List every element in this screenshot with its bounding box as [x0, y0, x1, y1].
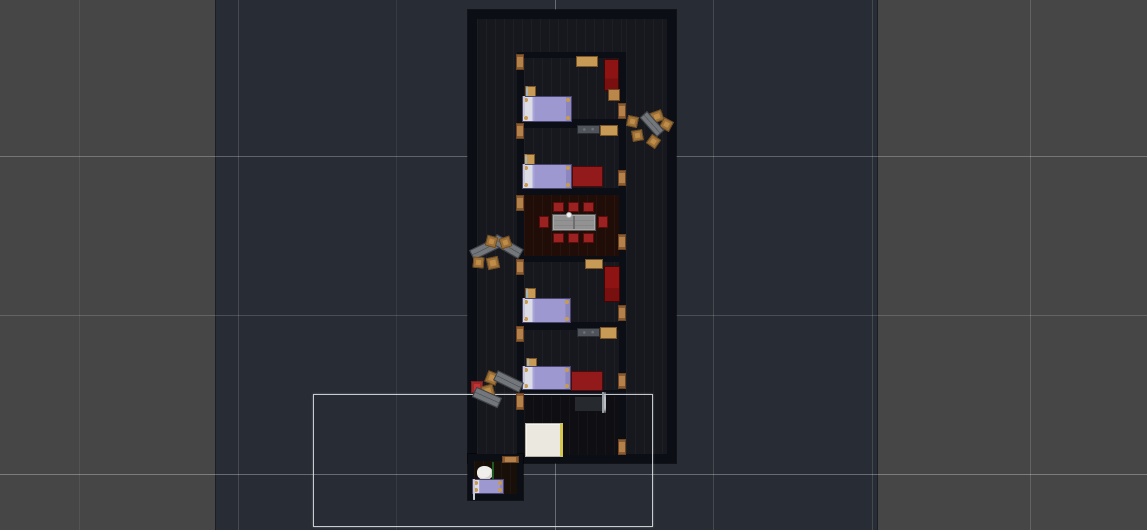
couch-red[interactable] — [571, 371, 603, 391]
grid-line-vertical — [238, 0, 239, 530]
wardrobe-red[interactable] — [604, 266, 620, 302]
chair-red[interactable] — [539, 216, 549, 228]
map-edge-left — [0, 0, 215, 530]
bed[interactable] — [522, 96, 572, 122]
door-v[interactable] — [516, 123, 524, 139]
map-edge-line — [877, 0, 878, 530]
map-edge-line — [215, 0, 216, 530]
shelf-tan[interactable] — [600, 125, 618, 136]
cup[interactable] — [566, 212, 572, 218]
shelf-tan[interactable] — [585, 259, 603, 269]
chair-red[interactable] — [553, 202, 564, 212]
shower[interactable] — [525, 423, 563, 457]
grid-line-vertical — [713, 0, 714, 530]
shelf-tan[interactable] — [576, 56, 598, 67]
stool[interactable] — [631, 129, 644, 142]
door-h[interactable] — [502, 456, 519, 463]
bed[interactable] — [472, 479, 504, 494]
counter[interactable] — [574, 396, 603, 412]
bed[interactable] — [522, 164, 572, 189]
bucket[interactable] — [486, 289, 505, 312]
chair-red[interactable] — [583, 233, 594, 243]
door-v[interactable] — [516, 195, 524, 211]
door-v[interactable] — [618, 305, 626, 321]
shelf-gray[interactable] — [577, 328, 600, 337]
chair-red[interactable] — [568, 233, 579, 243]
bed[interactable] — [522, 366, 571, 390]
door-v[interactable] — [516, 326, 524, 342]
shelf-tan[interactable] — [600, 327, 617, 339]
nightstand[interactable] — [608, 89, 620, 101]
door-v[interactable] — [618, 373, 626, 389]
door-v[interactable] — [516, 259, 524, 275]
stool[interactable] — [473, 257, 485, 269]
table-stone[interactable] — [552, 214, 596, 231]
door-v[interactable] — [618, 103, 626, 119]
grid-line-vertical — [872, 0, 873, 530]
grid-line-vertical — [1030, 0, 1031, 530]
door-v[interactable] — [618, 439, 626, 455]
chair-red[interactable] — [568, 202, 579, 212]
couch-red[interactable] — [572, 166, 603, 187]
stool[interactable] — [626, 115, 639, 128]
bundle[interactable] — [477, 466, 493, 480]
door-v[interactable] — [516, 393, 524, 410]
chair-red[interactable] — [583, 202, 594, 212]
chair-red[interactable] — [598, 216, 608, 228]
game-viewport[interactable] — [0, 0, 1147, 530]
corridor-right-floor — [626, 19, 667, 454]
stool[interactable] — [486, 256, 500, 270]
bed[interactable] — [522, 298, 571, 323]
shelf-gray[interactable] — [577, 125, 600, 134]
map-edge-right — [878, 0, 1147, 530]
door-v[interactable] — [618, 234, 626, 250]
door-v[interactable] — [516, 54, 524, 70]
grid-line-vertical — [79, 0, 80, 530]
toilet[interactable] — [602, 393, 619, 418]
wardrobe-red[interactable] — [604, 59, 619, 91]
bucket[interactable] — [637, 19, 655, 41]
chair-red[interactable] — [553, 233, 564, 243]
door-v[interactable] — [618, 170, 626, 186]
